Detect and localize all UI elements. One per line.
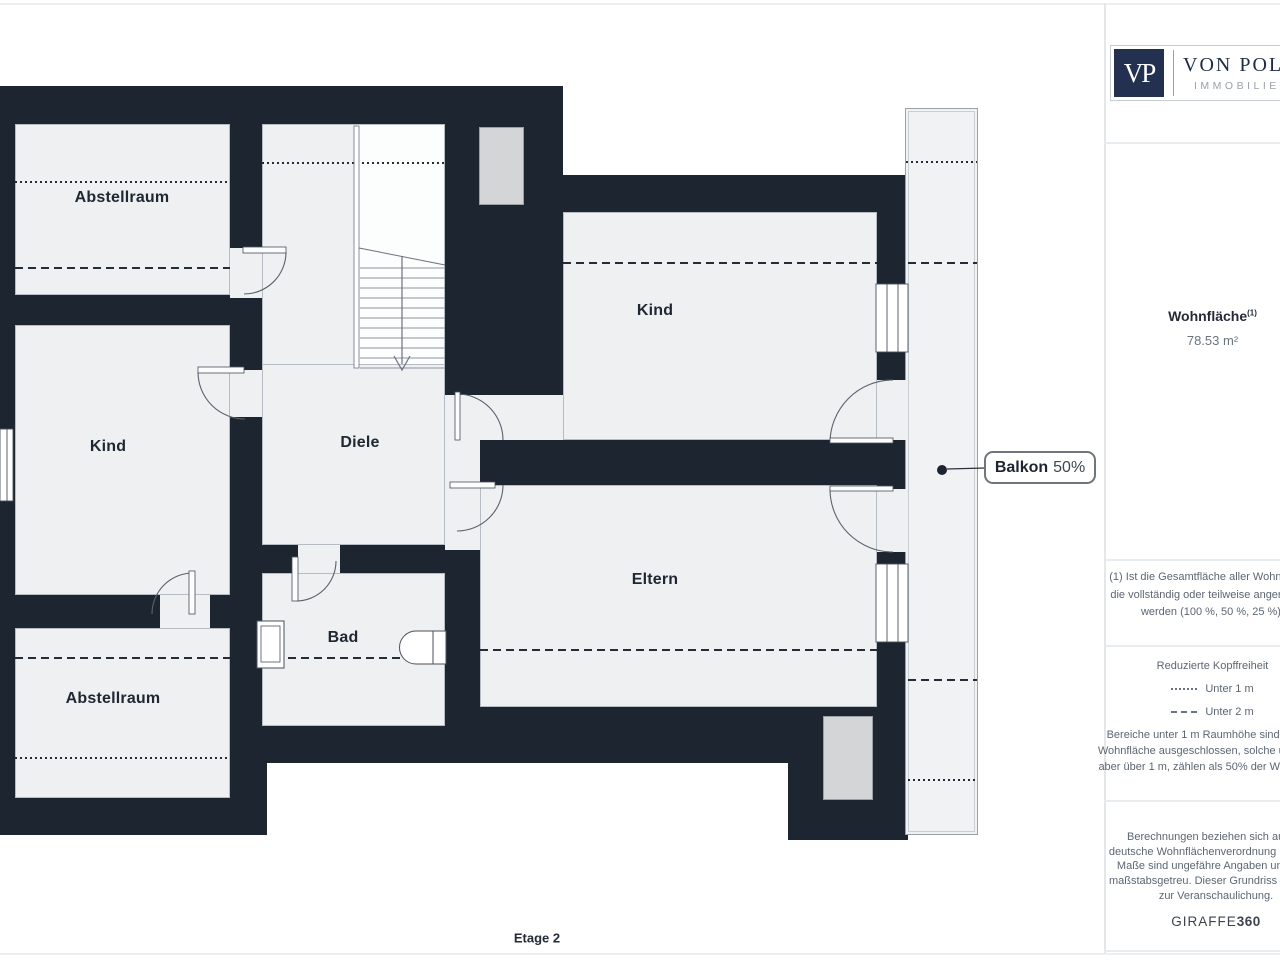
sidebar-separator xyxy=(1105,645,1280,647)
window xyxy=(0,429,13,501)
sidebar-divider xyxy=(1104,3,1106,953)
stair-railing xyxy=(354,126,359,368)
callout-leader-line xyxy=(947,468,985,469)
legend-note: Bereiche unter 1 m Raumhöhe sind von der… xyxy=(1097,728,1280,776)
legend-item-label: Unter 1 m xyxy=(1205,683,1253,695)
balkon-callout: Balkon50% xyxy=(984,451,1096,484)
brand-logo: GIRAFFE360 xyxy=(1105,913,1280,931)
legend: Reduzierte Kopffreiheit Unter 1 m Unter … xyxy=(1105,660,1280,776)
sink xyxy=(257,621,284,668)
logo-company-name: VON POLL xyxy=(1183,54,1280,77)
balkon-callout-label: Balkon xyxy=(995,459,1048,477)
disclaimer-text: Berechnungen beziehen sich auf die deuts… xyxy=(1105,830,1280,904)
room-label-diele: Diele xyxy=(340,434,379,452)
living-area-value: 78.53 m² xyxy=(1105,333,1280,348)
callout-anchor-dot xyxy=(937,465,947,475)
room-label-kind-left: Kind xyxy=(90,438,126,456)
legend-item-under-2m: Unter 2 m xyxy=(1105,706,1280,718)
room-label-kind-right: Kind xyxy=(637,302,673,320)
floor-label: Etage 2 xyxy=(514,931,560,946)
toilet xyxy=(400,631,447,664)
window xyxy=(876,284,908,352)
dotted-line-swatch xyxy=(1171,688,1197,690)
sidebar-separator xyxy=(1105,800,1280,802)
logo-monogram: VP xyxy=(1114,49,1164,97)
floorplan: Abstellraum Kind Abstellraum Diele Bad K… xyxy=(0,0,1105,960)
sidebar-separator xyxy=(1105,559,1280,561)
legend-item-under-1m: Unter 1 m xyxy=(1105,683,1280,695)
room-label-abstellraum-bottom: Abstellraum xyxy=(66,690,161,708)
dashed-line-swatch xyxy=(1171,711,1197,713)
window xyxy=(876,564,908,642)
door-arcs xyxy=(152,252,893,614)
stair-direction-arrow xyxy=(394,256,410,370)
legend-item-label: Unter 2 m xyxy=(1205,706,1253,718)
room-label-bad: Bad xyxy=(328,629,359,647)
living-area-label: Wohnfläche xyxy=(1168,308,1247,324)
room-label-eltern: Eltern xyxy=(632,571,679,589)
room-label-abstellraum-top: Abstellraum xyxy=(75,189,170,207)
living-area-title: Wohnfläche(1) xyxy=(1105,308,1280,324)
logo-separator xyxy=(1173,50,1174,96)
brand-name: GIRAFFE xyxy=(1171,914,1237,929)
sidebar-separator xyxy=(1105,950,1280,952)
logo-company-subtitle: IMMOBILIEN xyxy=(1194,80,1280,92)
footnote-text: (1) Ist die Gesamtfläche aller Wohnräume… xyxy=(1105,569,1280,622)
living-area-footnote-ref: (1) xyxy=(1247,308,1257,317)
door-leaves xyxy=(189,247,893,614)
brand-suffix: 360 xyxy=(1237,914,1261,929)
balkon-callout-value: 50% xyxy=(1053,459,1085,477)
legend-title: Reduzierte Kopffreiheit xyxy=(1105,660,1280,672)
floorplan-annotations xyxy=(0,0,1105,960)
company-logo: VP VON POLL IMMOBILIEN xyxy=(1110,45,1280,101)
sidebar-separator xyxy=(1105,142,1280,144)
